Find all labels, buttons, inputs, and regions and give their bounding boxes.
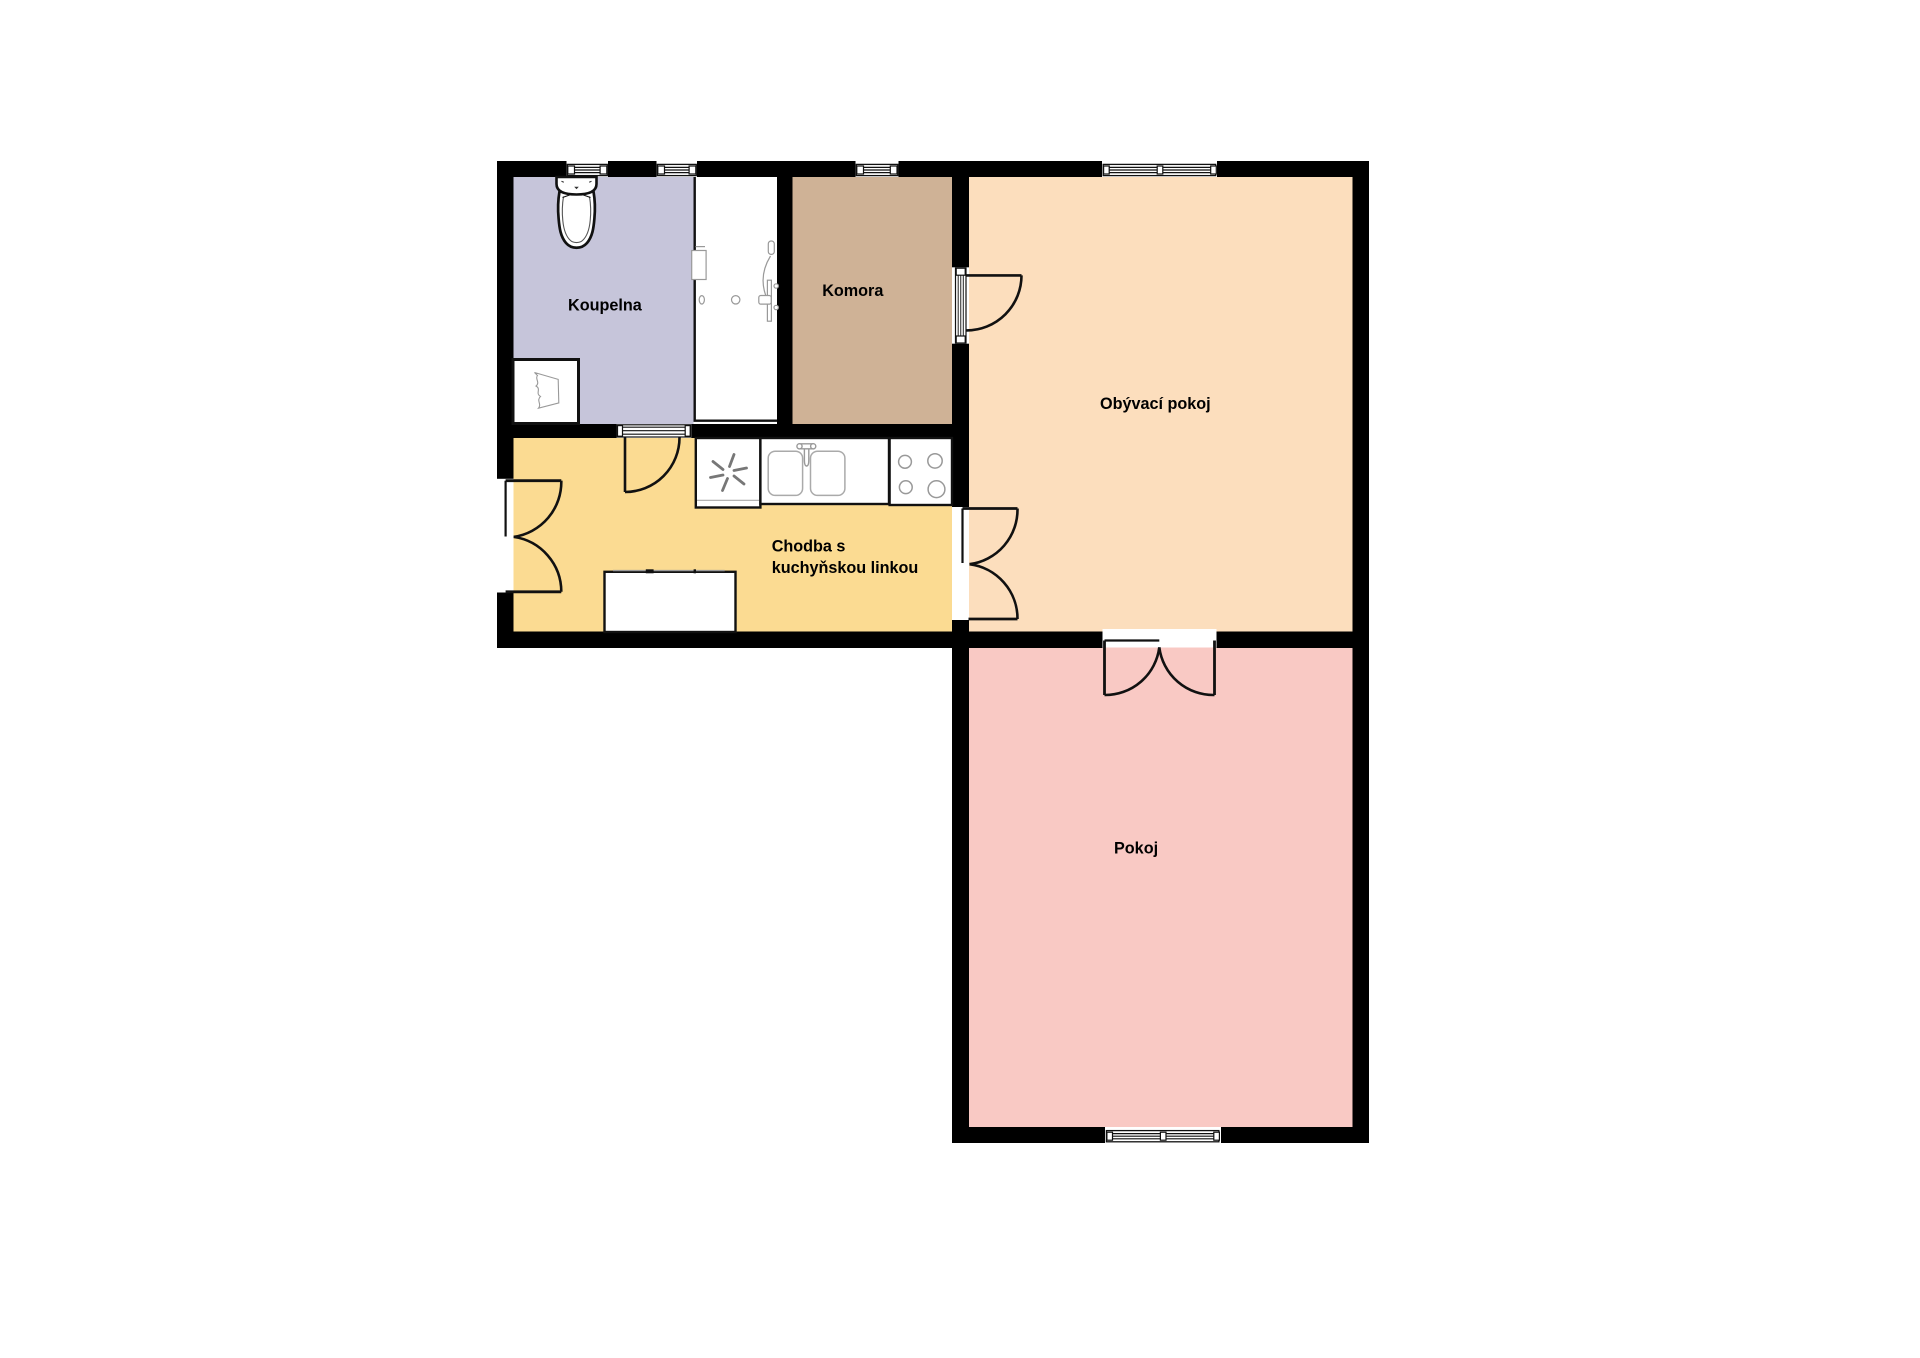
- svg-text:Obývací pokoj: Obývací pokoj: [1100, 395, 1211, 413]
- svg-text:Pokoj: Pokoj: [1114, 840, 1158, 858]
- svg-text:Komora: Komora: [822, 282, 884, 300]
- svg-text:Chodba s: Chodba s: [772, 537, 846, 555]
- svg-text:Koupelna: Koupelna: [568, 296, 643, 314]
- svg-text:kuchyňskou linkou: kuchyňskou linkou: [772, 559, 919, 577]
